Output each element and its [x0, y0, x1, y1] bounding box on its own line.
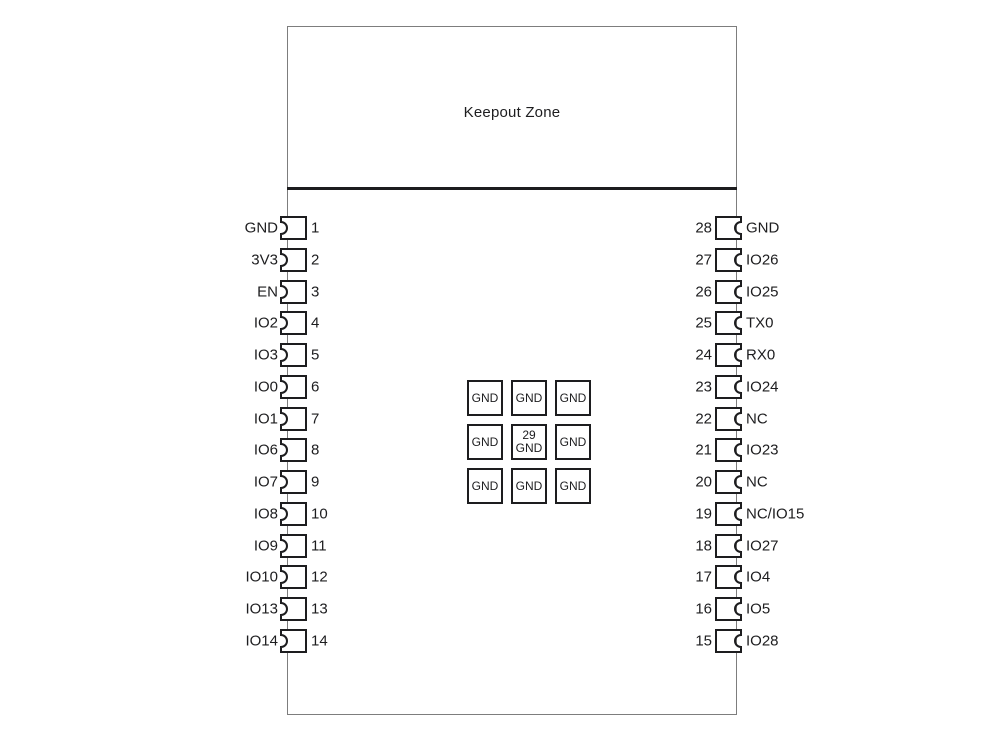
keepout-zone-label: Keepout Zone: [287, 104, 737, 121]
castellated-pin-icon: [715, 216, 742, 240]
pin-label: IO26: [746, 252, 779, 269]
pad-label: GND: [472, 392, 499, 405]
pin-number: 17: [695, 569, 712, 586]
castellated-pin-icon: [715, 565, 742, 589]
pad-label: GND: [472, 436, 499, 449]
pin-number: 26: [695, 284, 712, 301]
gnd-pad: GND: [555, 380, 591, 416]
pin-row-16: 16IO5: [0, 597, 1000, 621]
pin-label: IO25: [746, 284, 779, 301]
pin-row-28: 28GND: [0, 216, 1000, 240]
pin-label: NC: [746, 411, 768, 428]
pin-label: NC/IO15: [746, 506, 804, 523]
pin-number: 25: [695, 315, 712, 332]
pin-number: 20: [695, 474, 712, 491]
pin-label: GND: [746, 220, 779, 237]
castellated-pin-icon: [715, 470, 742, 494]
gnd-pad: GND: [467, 468, 503, 504]
pin-number: 27: [695, 252, 712, 269]
pin-number: 15: [695, 633, 712, 650]
pin-label: IO27: [746, 538, 779, 555]
center-ground-pad-grid: GNDGNDGNDGND29GNDGNDGNDGNDGND: [467, 380, 591, 504]
keepout-divider-line: [287, 187, 737, 190]
pad-label: GND: [560, 392, 587, 405]
gnd-pad: GND: [511, 380, 547, 416]
castellated-pin-icon: [715, 280, 742, 304]
gnd-pad: GND: [467, 380, 503, 416]
pad-label: GND: [516, 392, 543, 405]
pin-row-19: 19NC/IO15: [0, 502, 1000, 526]
pin-label: IO23: [746, 442, 779, 459]
pin-number: 16: [695, 601, 712, 618]
castellated-pin-icon: [715, 438, 742, 462]
gnd-pad: GND: [555, 424, 591, 460]
pin-number: 21: [695, 442, 712, 459]
castellated-pin-icon: [715, 311, 742, 335]
gnd-pad: GND: [555, 468, 591, 504]
gnd-pad: GND: [467, 424, 503, 460]
pin-row-17: 17IO4: [0, 565, 1000, 589]
pad-label: GND: [472, 480, 499, 493]
castellated-pin-icon: [715, 375, 742, 399]
pin-label: RX0: [746, 347, 775, 364]
pin-label: IO24: [746, 379, 779, 396]
module-pinout-diagram: Keepout Zone GND13V32EN3IO24IO35IO06IO17…: [0, 0, 1000, 746]
pin-row-15: 15IO28: [0, 629, 1000, 653]
pin-label: IO4: [746, 569, 770, 586]
castellated-pin-icon: [715, 407, 742, 431]
pin-number: 28: [695, 220, 712, 237]
pin-number: 18: [695, 538, 712, 555]
castellated-pin-icon: [715, 502, 742, 526]
pin-number: 23: [695, 379, 712, 396]
pad-label: GND: [560, 480, 587, 493]
pin-row-26: 26IO25: [0, 280, 1000, 304]
pin-label: TX0: [746, 315, 774, 332]
pad-label: GND: [560, 436, 587, 449]
pad-label: GND: [516, 480, 543, 493]
gnd-pad-29: 29GND: [511, 424, 547, 460]
castellated-pin-icon: [715, 343, 742, 367]
castellated-pin-icon: [715, 597, 742, 621]
pin-label: NC: [746, 474, 768, 491]
pin-row-25: 25TX0: [0, 311, 1000, 335]
pad-label: GND: [516, 442, 543, 455]
pin-number: 19: [695, 506, 712, 523]
pin-row-27: 27IO26: [0, 248, 1000, 272]
pin-label: IO28: [746, 633, 779, 650]
pin-number: 24: [695, 347, 712, 364]
pin-number: 22: [695, 411, 712, 428]
castellated-pin-icon: [715, 629, 742, 653]
pin-label: IO5: [746, 601, 770, 618]
gnd-pad: GND: [511, 468, 547, 504]
pin-row-18: 18IO27: [0, 534, 1000, 558]
castellated-pin-icon: [715, 248, 742, 272]
pin-row-24: 24RX0: [0, 343, 1000, 367]
castellated-pin-icon: [715, 534, 742, 558]
